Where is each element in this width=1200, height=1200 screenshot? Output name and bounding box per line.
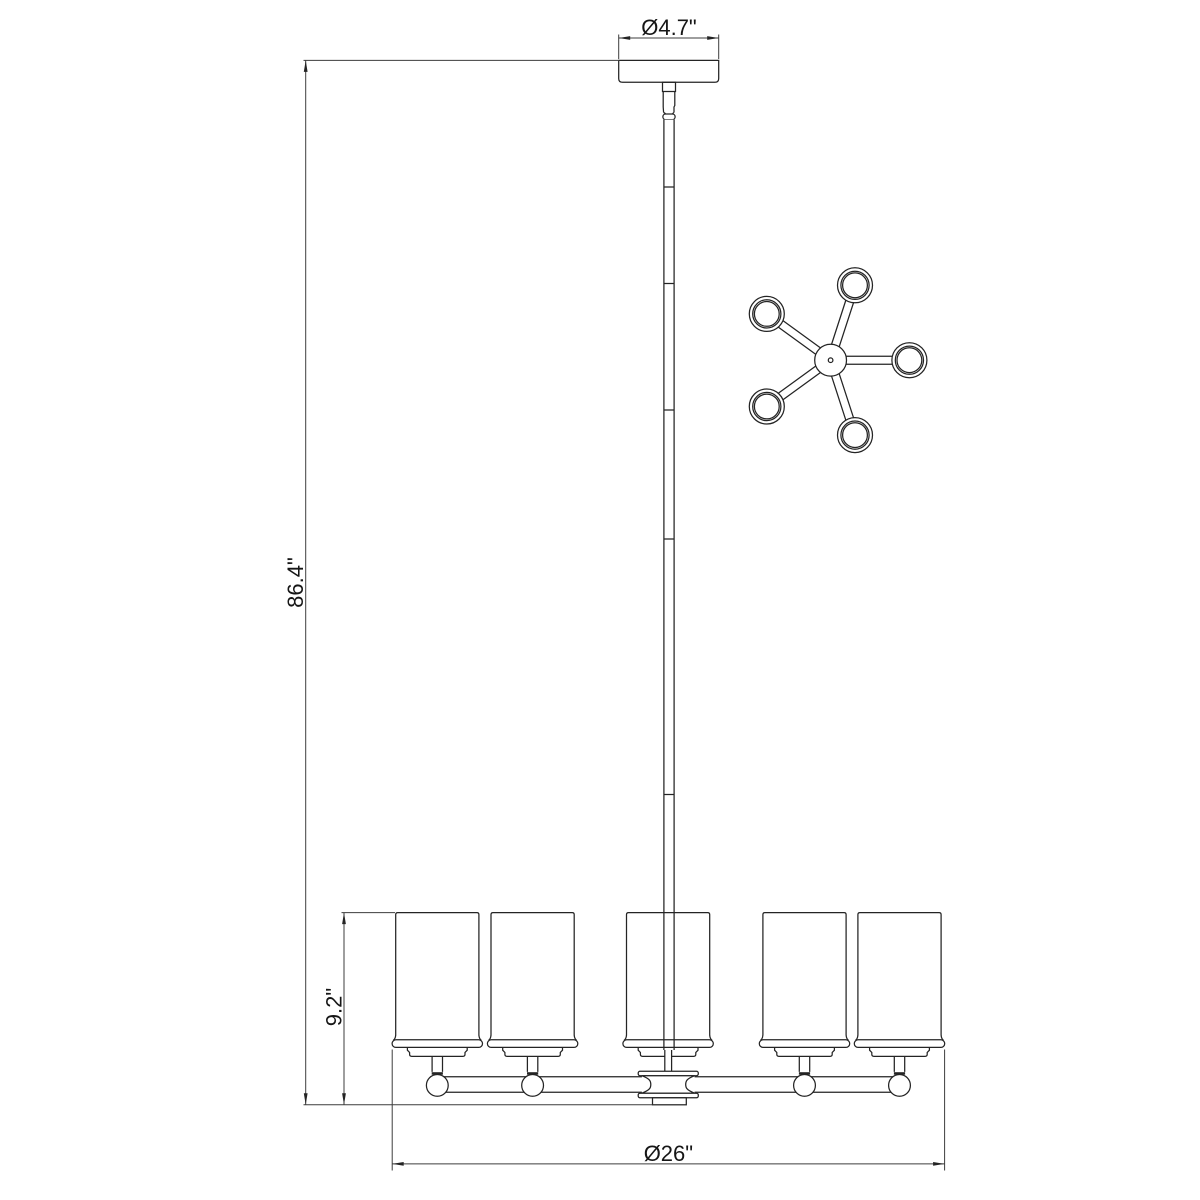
svg-text:Ø4.7": Ø4.7" [641, 15, 697, 40]
svg-text:9.2": 9.2" [322, 988, 347, 1026]
svg-text:Ø26": Ø26" [644, 1141, 693, 1166]
svg-text:86.4": 86.4" [283, 557, 308, 608]
